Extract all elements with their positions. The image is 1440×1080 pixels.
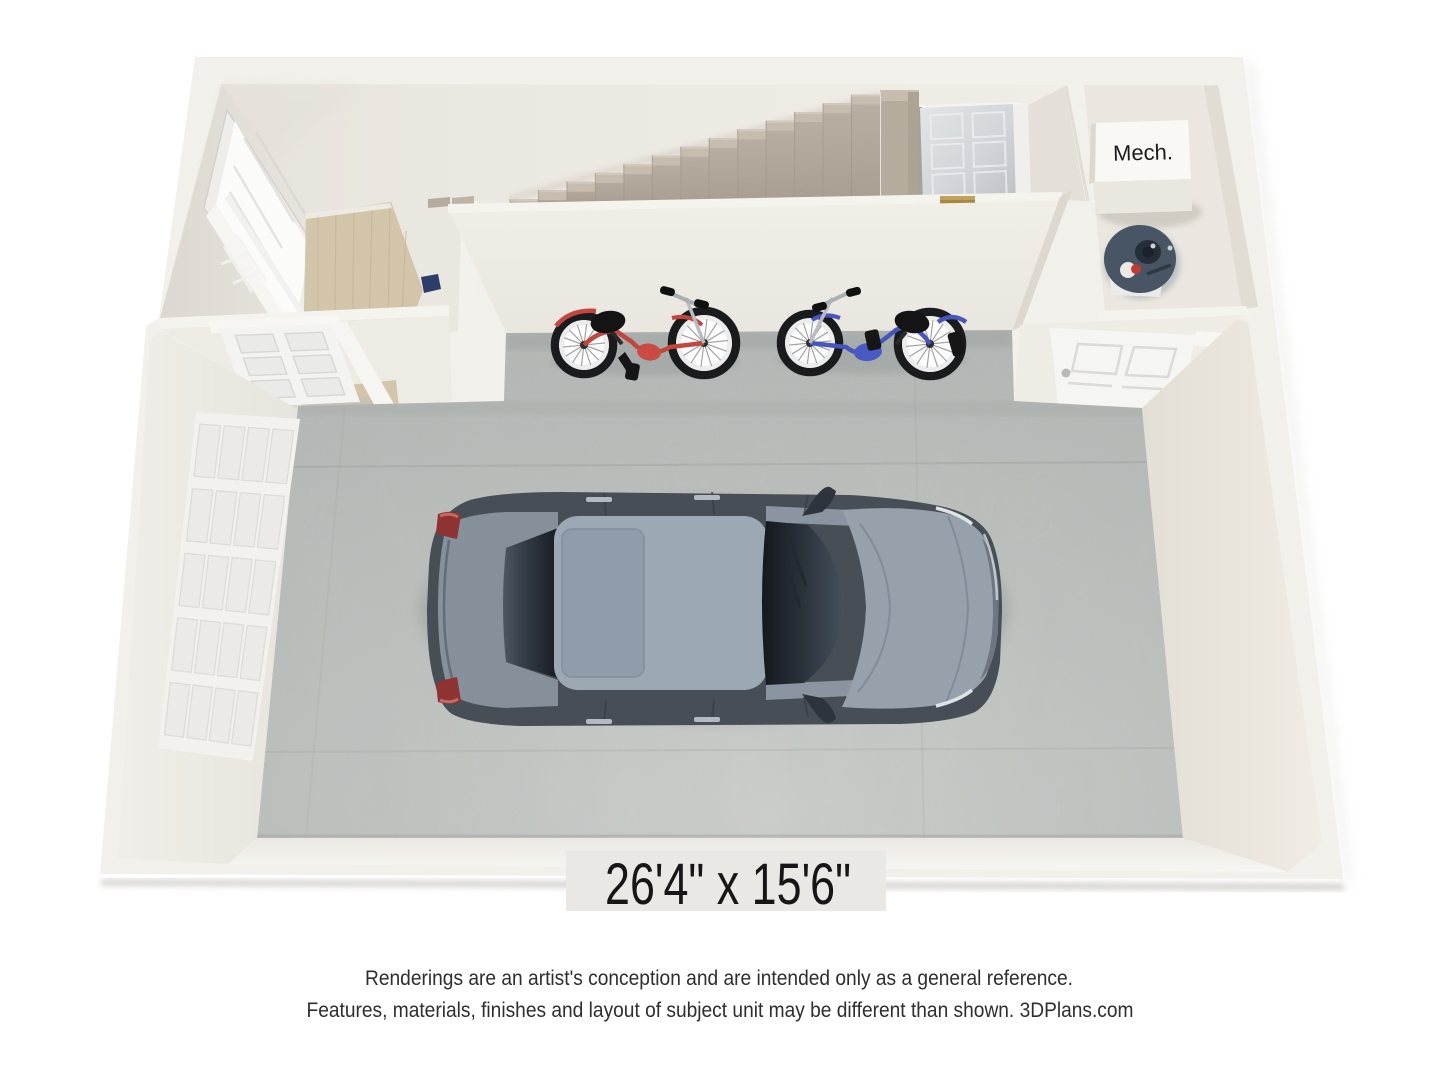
svg-text:Mech.: Mech. bbox=[1113, 139, 1174, 166]
svg-text:Renderings are an artist's con: Renderings are an artist's conception an… bbox=[365, 967, 1073, 990]
svg-text:26'4" x 15'6": 26'4" x 15'6" bbox=[605, 852, 851, 917]
svg-text:Features, materials, finishes: Features, materials, finishes and layout… bbox=[307, 999, 1134, 1022]
